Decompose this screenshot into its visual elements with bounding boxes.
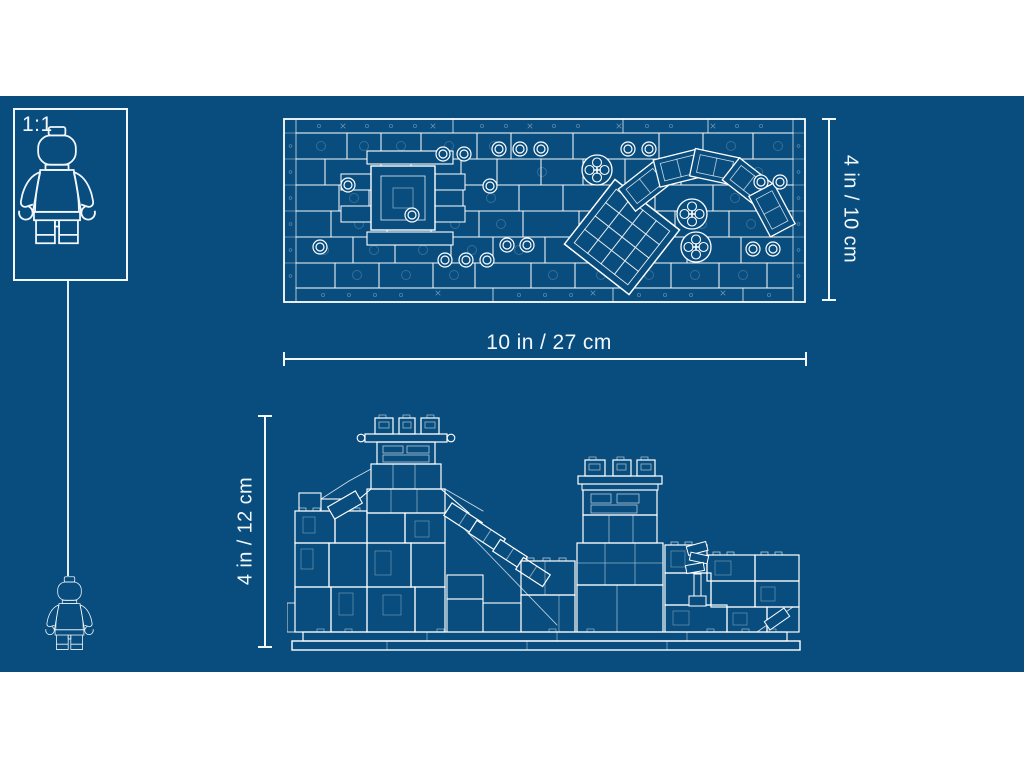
scale-connector-line <box>67 281 69 576</box>
minifigure-front-icon <box>13 126 101 260</box>
plan-depth-dimension <box>822 118 836 301</box>
plan-view-drawing <box>283 118 806 303</box>
elevation-height-label: 4 in / 12 cm <box>235 477 258 585</box>
plan-width-label: 10 in / 27 cm <box>486 331 611 355</box>
elevation-height-dimension <box>258 415 272 648</box>
elevation-view-drawing <box>287 403 807 652</box>
minifigure-small-icon <box>42 576 97 660</box>
plan-depth-label: 4 in / 10 cm <box>839 155 862 263</box>
page: 1:1 <box>0 0 1024 767</box>
blueprint-panel: 1:1 <box>0 96 1024 672</box>
